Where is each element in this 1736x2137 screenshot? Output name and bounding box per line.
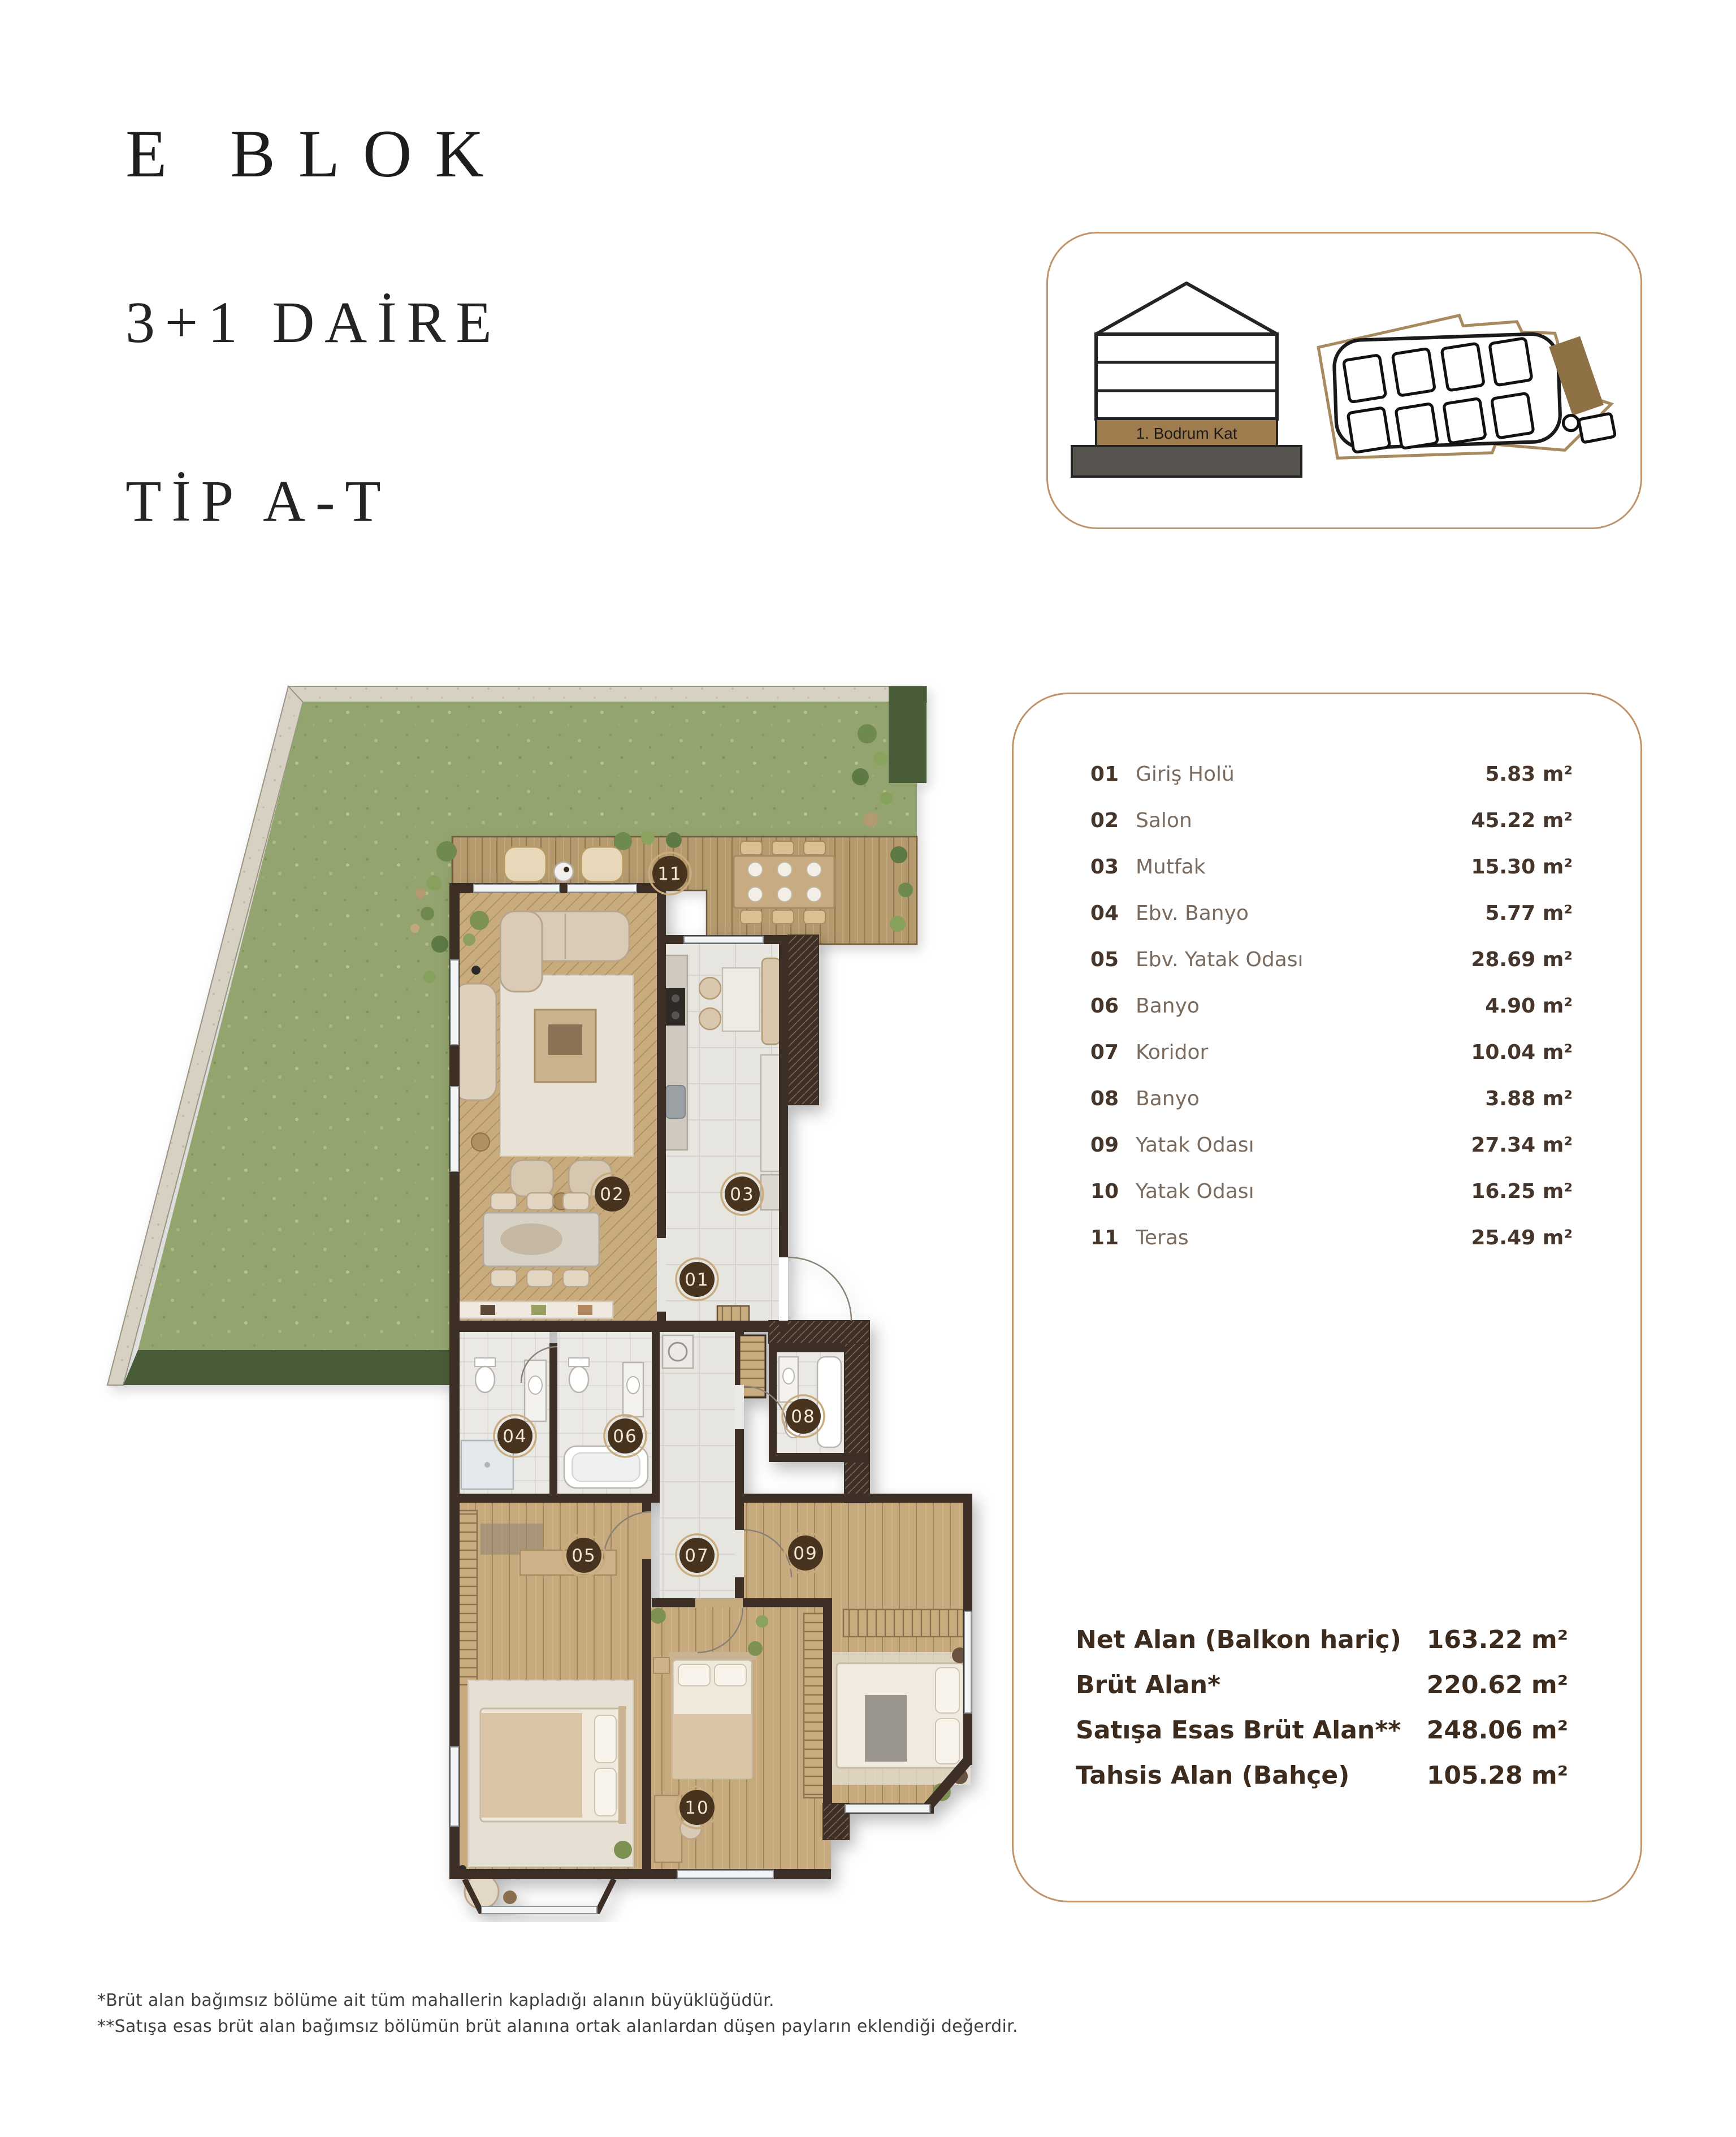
footnote-1: *Brüt alan bağımsız bölüme ait tüm mahal…: [97, 1988, 1018, 2014]
room-list: 01Giriş Holü5.83 m²02Salon45.22 m²03Mutf…: [1081, 751, 1573, 1261]
sofa-side: [453, 984, 496, 1100]
room-marker-10: 10: [676, 1786, 718, 1828]
room-marker-07: 07: [676, 1534, 718, 1576]
svg-text:10: 10: [685, 1798, 709, 1818]
room-name: Koridor: [1136, 1041, 1471, 1064]
svg-text:06: 06: [613, 1426, 637, 1447]
room-row: 07Koridor10.04 m²: [1081, 1029, 1573, 1075]
info-panel: 01Giriş Holü5.83 m²02Salon45.22 m²03Mutf…: [1012, 693, 1642, 1902]
area-summary: Net Alan (Balkon hariç)163.22 m²Brüt Ala…: [1076, 1617, 1568, 1798]
room-marker-09: 09: [785, 1532, 826, 1574]
footnotes: *Brüt alan bağımsız bölüme ait tüm mahal…: [97, 1988, 1018, 2040]
summary-value: 220.62 m²: [1427, 1671, 1568, 1699]
room-number: 09: [1081, 1134, 1119, 1157]
room-name: Banyo: [1136, 994, 1485, 1018]
room-area: 16.25 m²: [1471, 1180, 1573, 1203]
room-number: 08: [1081, 1087, 1119, 1110]
subtitle-line1: 3+1 DAİRE: [125, 290, 502, 355]
room-marker-01: 01: [676, 1258, 718, 1300]
room-marker-08: 08: [782, 1395, 824, 1437]
footnote-2: **Satışa esas brüt alan bağımsız bölümün…: [97, 2014, 1018, 2040]
summary-value: 105.28 m²: [1427, 1761, 1568, 1790]
floor-plan: 0102030405060708091011: [85, 650, 1018, 1922]
room-marker-05: 05: [563, 1534, 605, 1576]
banquette: [762, 958, 780, 1044]
hedge-bottom: [123, 1350, 452, 1385]
deck-dining-set: [734, 841, 834, 924]
apartment: [449, 883, 972, 1914]
hedge-top-right: [889, 686, 927, 783]
room-number: 11: [1081, 1226, 1119, 1249]
title-block: E BLOK: [125, 116, 507, 191]
room-row: 03Mutfak15.30 m²: [1081, 843, 1573, 890]
room-row: 02Salon45.22 m²: [1081, 797, 1573, 843]
room-row: 08Banyo3.88 m²: [1081, 1075, 1573, 1122]
site-roundabout: [1563, 415, 1579, 431]
room-name: Banyo: [1136, 1087, 1485, 1110]
room-row: 06Banyo4.90 m²: [1081, 983, 1573, 1029]
room-row: 09Yatak Odası27.34 m²: [1081, 1122, 1573, 1168]
room-row: 05Ebv. Yatak Odası28.69 m²: [1081, 936, 1573, 983]
room-name: Ebv. Yatak Odası: [1136, 948, 1471, 971]
room-name: Giriş Holü: [1136, 763, 1485, 786]
headboard05: [618, 1706, 626, 1824]
svg-text:09: 09: [793, 1543, 817, 1564]
floor-lamp: [471, 966, 480, 975]
room-number: 01: [1081, 763, 1119, 786]
room-area: 28.69 m²: [1471, 948, 1573, 971]
room-number: 04: [1081, 902, 1119, 925]
page-subtitle: 3+1 DAİRE TİP A-T: [125, 278, 502, 546]
throw-blanket: [865, 1695, 907, 1762]
room-row: 11Teras25.49 m²: [1081, 1214, 1573, 1261]
washer: [663, 1335, 693, 1368]
room-marker-11: 11: [649, 853, 691, 894]
svg-text:01: 01: [685, 1270, 709, 1290]
room-name: Yatak Odası: [1136, 1134, 1471, 1157]
summary-value: 163.22 m²: [1427, 1625, 1568, 1654]
svg-text:11: 11: [657, 864, 682, 884]
summary-row: Brüt Alan*220.62 m²: [1076, 1662, 1568, 1707]
room-row: 10Yatak Odası16.25 m²: [1081, 1168, 1573, 1214]
svg-text:03: 03: [730, 1184, 754, 1205]
room-marker-02: 02: [591, 1173, 633, 1215]
room-area: 27.34 m²: [1471, 1134, 1573, 1157]
building-section-icon: 1. Bodrum Kat: [1071, 266, 1302, 487]
room-marker-03: 03: [721, 1173, 763, 1215]
svg-text:08: 08: [791, 1407, 815, 1427]
kitchen-table: [722, 968, 760, 1031]
wardrobe09: [843, 1610, 963, 1637]
armchair-1: [510, 1160, 553, 1196]
room-name: Yatak Odası: [1136, 1180, 1471, 1203]
subtitle-line2: TİP A-T: [125, 469, 391, 534]
room-row: 01Giriş Holü5.83 m²: [1081, 751, 1573, 797]
summary-label: Satışa Esas Brüt Alan**: [1076, 1716, 1427, 1745]
room-number: 05: [1081, 948, 1119, 971]
site-plan-icon: [1314, 306, 1619, 464]
room-name: Mutfak: [1136, 855, 1471, 879]
summary-row: Satışa Esas Brüt Alan**248.06 m²: [1076, 1707, 1568, 1753]
summary-row: Tahsis Alan (Bahçe)105.28 m²: [1076, 1753, 1568, 1798]
room-area: 25.49 m²: [1471, 1226, 1573, 1249]
room-marker-04: 04: [494, 1415, 536, 1457]
svg-text:02: 02: [600, 1184, 624, 1205]
roof-icon: [1096, 283, 1277, 334]
floor-label: 1. Bodrum Kat: [1136, 425, 1237, 442]
floors-icon: [1096, 334, 1277, 419]
room-number: 07: [1081, 1041, 1119, 1064]
room-marker-06: 06: [604, 1415, 646, 1457]
svg-text:05: 05: [572, 1546, 596, 1566]
room-area: 45.22 m²: [1471, 809, 1573, 832]
summary-label: Tahsis Alan (Bahçe): [1076, 1761, 1427, 1790]
room-area: 5.77 m²: [1485, 902, 1573, 925]
brochure-page: { "header": { "block_title": "E BLOK", "…: [0, 0, 1736, 2137]
room-name: Salon: [1136, 809, 1471, 832]
plant05: [614, 1841, 632, 1859]
kitchen-counter: [664, 955, 687, 1150]
room-area: 5.83 m²: [1485, 763, 1573, 786]
room-name: Ebv. Banyo: [1136, 902, 1485, 925]
salon-plant: [470, 911, 489, 930]
key-plan-box: 1. Bodrum Kat: [1046, 232, 1642, 529]
svg-text:04: 04: [503, 1426, 527, 1447]
room-number: 06: [1081, 994, 1119, 1018]
stone-path-top: [288, 686, 927, 702]
room-area: 4.90 m²: [1485, 994, 1573, 1018]
kitchen-cabinets: [761, 1055, 781, 1171]
coffee-table-tray: [548, 1024, 582, 1055]
room-area: 15.30 m²: [1471, 855, 1573, 879]
room-area: 10.04 m²: [1471, 1041, 1573, 1064]
toilet: [475, 1366, 495, 1392]
cooktop: [666, 988, 685, 1026]
room-number: 02: [1081, 809, 1119, 832]
headboard10: [669, 1652, 756, 1660]
room-row: 04Ebv. Banyo5.77 m²: [1081, 890, 1573, 936]
page-title: E BLOK: [125, 116, 507, 191]
room-name: Teras: [1136, 1226, 1471, 1249]
sink: [666, 1085, 685, 1118]
ground-slab-icon: [1072, 446, 1301, 477]
room-number: 10: [1081, 1180, 1119, 1203]
desk10: [655, 1796, 682, 1862]
summary-row: Net Alan (Balkon hariç)163.22 m²: [1076, 1617, 1568, 1662]
svg-text:07: 07: [685, 1546, 709, 1566]
summary-label: Net Alan (Balkon hariç): [1076, 1625, 1427, 1654]
wardrobe10: [804, 1613, 825, 1798]
summary-value: 248.06 m²: [1427, 1716, 1568, 1745]
summary-label: Brüt Alan*: [1076, 1671, 1427, 1699]
room-number: 03: [1081, 855, 1119, 879]
room-area: 3.88 m²: [1485, 1087, 1573, 1110]
